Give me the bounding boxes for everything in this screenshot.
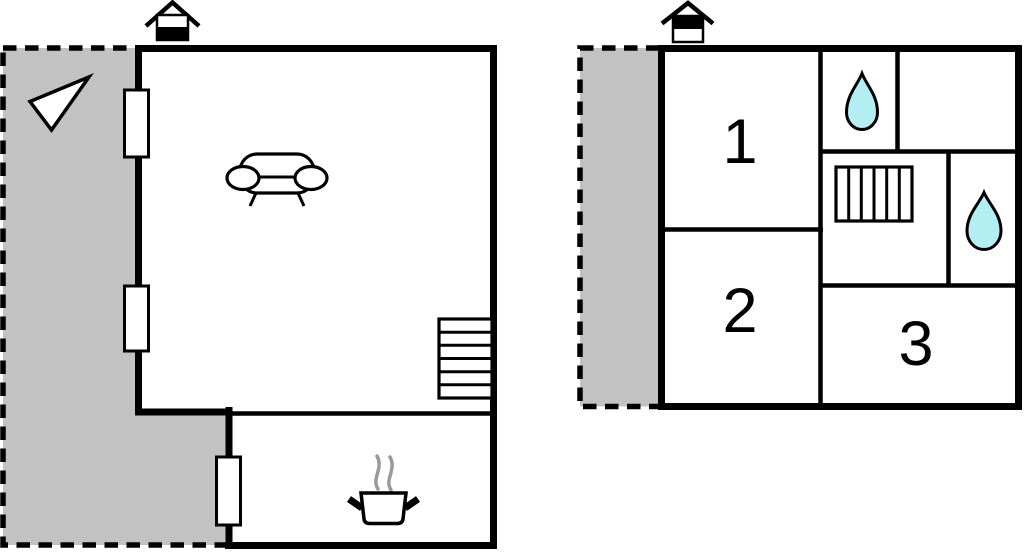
chimney-icon (146, 3, 199, 41)
stairs-icon (439, 319, 492, 398)
room-label-1: 1 (722, 107, 757, 177)
room-label-3: 3 (898, 309, 933, 379)
ground-floor-plan (3, 3, 497, 550)
window (125, 286, 149, 351)
window (217, 457, 241, 525)
floorplan-canvas: 1 2 3 (0, 0, 1024, 558)
window (125, 90, 149, 157)
kitchen-floor (229, 412, 494, 545)
room-label-2: 2 (722, 276, 757, 346)
chimney-icon (662, 3, 713, 42)
upper-floor-plan: 1 2 3 (580, 3, 1022, 410)
balcony-area (580, 48, 662, 407)
stairs-icon (836, 167, 912, 221)
